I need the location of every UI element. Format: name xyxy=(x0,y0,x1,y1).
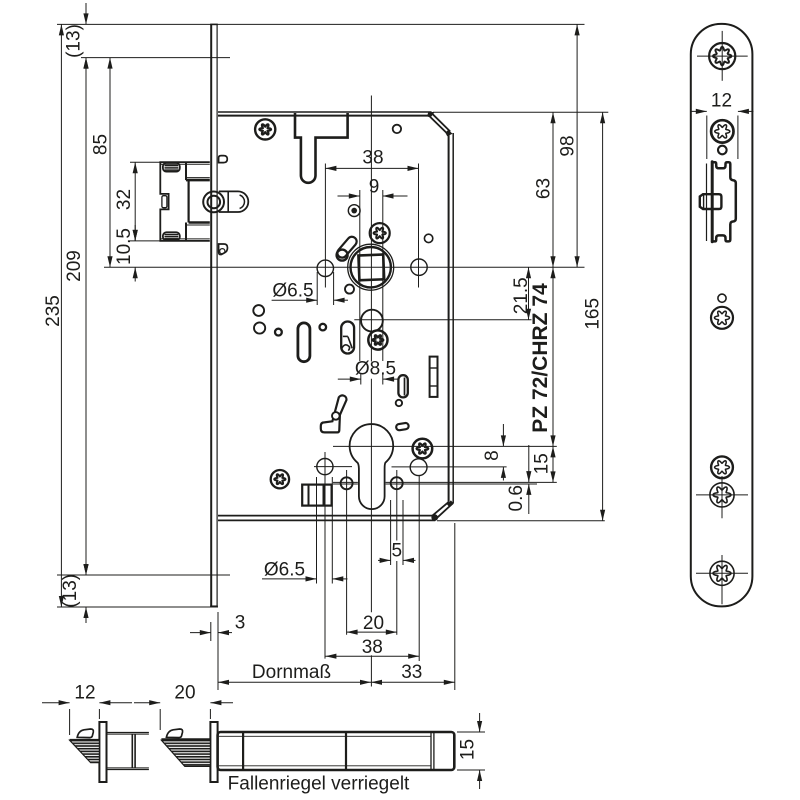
svg-text:12: 12 xyxy=(74,682,95,703)
svg-text:3: 3 xyxy=(235,613,246,634)
svg-text:10.5: 10.5 xyxy=(114,228,135,265)
svg-text:38: 38 xyxy=(362,637,383,658)
svg-text:Ø8.5: Ø8.5 xyxy=(355,359,396,380)
svg-text:98: 98 xyxy=(558,135,579,156)
svg-text:PZ 72/CHRZ 74: PZ 72/CHRZ 74 xyxy=(529,283,552,433)
svg-text:15: 15 xyxy=(532,453,553,474)
svg-text:Fallenriegel verriegelt: Fallenriegel verriegelt xyxy=(228,774,410,795)
svg-text:63: 63 xyxy=(534,178,555,199)
svg-text:20: 20 xyxy=(174,682,195,703)
svg-text:(13): (13) xyxy=(64,24,85,58)
svg-text:20: 20 xyxy=(363,613,384,634)
svg-text:235: 235 xyxy=(43,295,64,327)
svg-text:Ø6.5: Ø6.5 xyxy=(272,280,313,301)
svg-text:9: 9 xyxy=(369,177,380,198)
svg-text:209: 209 xyxy=(64,250,85,282)
svg-text:5: 5 xyxy=(392,541,403,562)
svg-text:15: 15 xyxy=(458,739,479,760)
svg-text:38: 38 xyxy=(362,148,383,169)
svg-text:8: 8 xyxy=(482,450,503,461)
svg-text:(13): (13) xyxy=(60,574,81,608)
svg-text:165: 165 xyxy=(582,298,603,330)
svg-text:85: 85 xyxy=(91,134,112,155)
svg-text:32: 32 xyxy=(114,189,135,210)
svg-text:Ø6.5: Ø6.5 xyxy=(264,560,305,581)
svg-text:33: 33 xyxy=(401,662,422,683)
svg-text:12: 12 xyxy=(711,91,732,112)
svg-text:0.6: 0.6 xyxy=(506,485,527,511)
svg-text:21.5: 21.5 xyxy=(511,277,532,314)
svg-text:Dornmaß: Dornmaß xyxy=(252,662,331,683)
